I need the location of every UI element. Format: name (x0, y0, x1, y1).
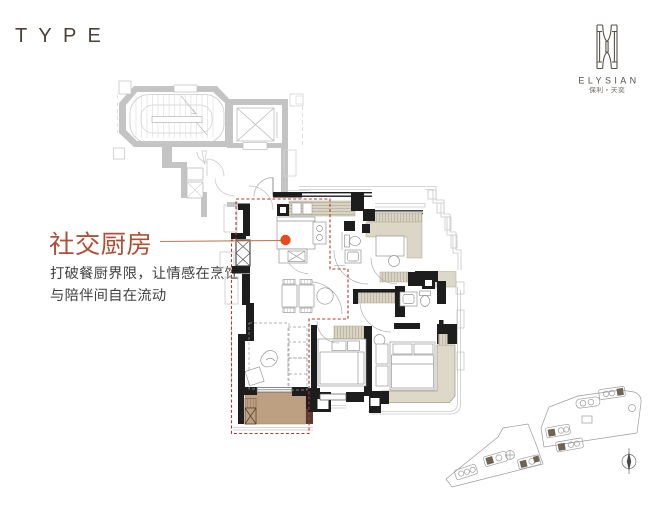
svg-text:ELYSIAN: ELYSIAN (578, 76, 639, 86)
svg-text:TYPE: TYPE (15, 25, 112, 47)
